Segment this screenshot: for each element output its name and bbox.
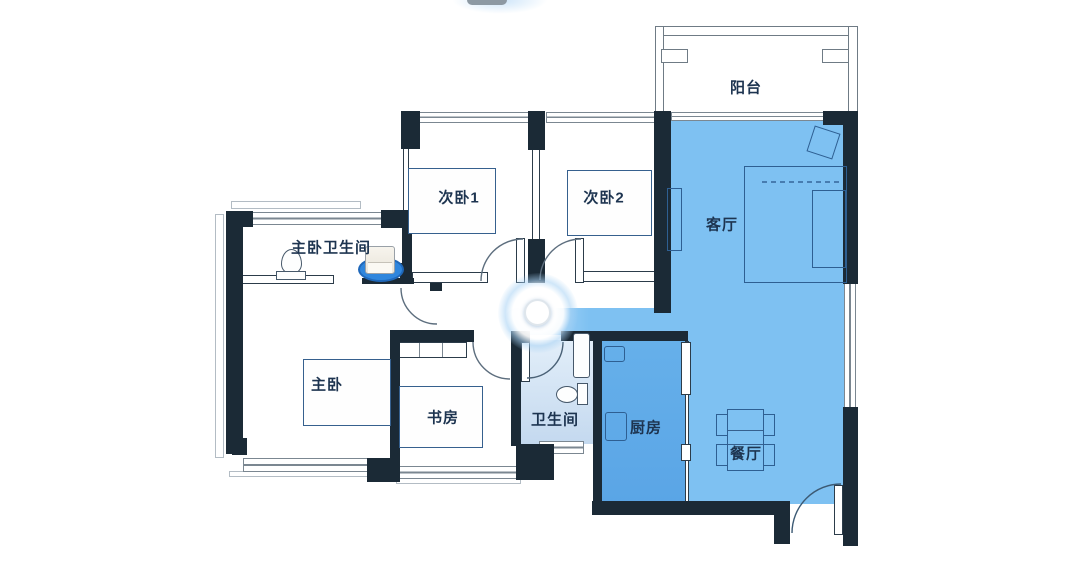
wall-segment bbox=[390, 330, 474, 342]
balcony-railing bbox=[848, 26, 858, 115]
room-label-bedroom-2: 次卧2 bbox=[583, 187, 624, 208]
robot-marker-icon[interactable] bbox=[524, 299, 551, 326]
door-arc bbox=[401, 288, 437, 324]
room-label-bathroom: 卫生间 bbox=[531, 409, 579, 430]
dining-chair bbox=[763, 414, 775, 436]
wall-segment bbox=[593, 341, 602, 504]
room-label-master-bedroom: 主卧 bbox=[311, 374, 343, 395]
balcony-railing bbox=[655, 26, 858, 36]
kitchen-divider-block bbox=[681, 444, 691, 461]
window-segment bbox=[844, 283, 856, 409]
bay-window-line bbox=[215, 214, 224, 458]
wall-segment bbox=[774, 501, 790, 544]
wall-segment bbox=[516, 444, 554, 480]
toilet-tank bbox=[577, 383, 588, 405]
room-label-study: 书房 bbox=[427, 407, 459, 428]
room-label-living-room: 客厅 bbox=[706, 214, 738, 235]
wall-band bbox=[412, 272, 488, 283]
dining-chair bbox=[763, 444, 775, 466]
room-label-kitchen: 厨房 bbox=[630, 417, 662, 438]
wall-segment bbox=[591, 331, 688, 341]
wall-segment bbox=[367, 458, 400, 482]
wall-segment bbox=[226, 211, 243, 454]
room-label-bedroom-1: 次卧1 bbox=[438, 187, 479, 208]
window-segment bbox=[252, 212, 383, 225]
room-label-balcony: 阳台 bbox=[730, 77, 762, 98]
wall-segment bbox=[511, 342, 521, 446]
wall-segment bbox=[843, 407, 858, 546]
wall-segment bbox=[690, 501, 785, 515]
floor-plan-canvas: 阳台 次卧1 次卧2 客厅 主卧卫生间 主卧 书房 卫生间 厨房 餐厅 bbox=[0, 0, 1080, 586]
wall-segment bbox=[226, 211, 253, 227]
dining-chair bbox=[716, 444, 728, 466]
wall-segment bbox=[430, 283, 442, 291]
window-segment bbox=[419, 112, 529, 123]
room-study[interactable] bbox=[400, 342, 511, 465]
wall-band bbox=[580, 271, 656, 282]
kitchen-door-leaf bbox=[681, 342, 691, 395]
sofa bbox=[812, 190, 846, 268]
bay-window-line bbox=[231, 201, 361, 209]
washbasin-icon bbox=[573, 333, 590, 378]
top-edge-handle bbox=[467, 0, 507, 5]
room-label-dining-room: 餐厅 bbox=[730, 443, 762, 464]
entry-door-leaf bbox=[834, 485, 843, 535]
room-master-bedroom[interactable] bbox=[243, 284, 389, 457]
toilet-icon bbox=[556, 386, 578, 403]
room-label-master-bath: 主卧卫生间 bbox=[291, 237, 371, 258]
window-segment bbox=[243, 458, 369, 472]
wall-segment bbox=[528, 111, 545, 150]
balcony-slider-window bbox=[671, 112, 827, 121]
kitchen-sink bbox=[604, 346, 625, 362]
room-balcony[interactable] bbox=[664, 36, 848, 112]
window-segment bbox=[399, 466, 518, 479]
wall-band bbox=[532, 149, 540, 242]
wall-segment bbox=[592, 501, 691, 515]
tv-cabinet bbox=[667, 188, 682, 251]
kitchen-stove bbox=[605, 412, 627, 441]
dining-chair bbox=[716, 414, 728, 436]
balcony-railing bbox=[655, 26, 664, 115]
window-segment bbox=[546, 112, 656, 123]
